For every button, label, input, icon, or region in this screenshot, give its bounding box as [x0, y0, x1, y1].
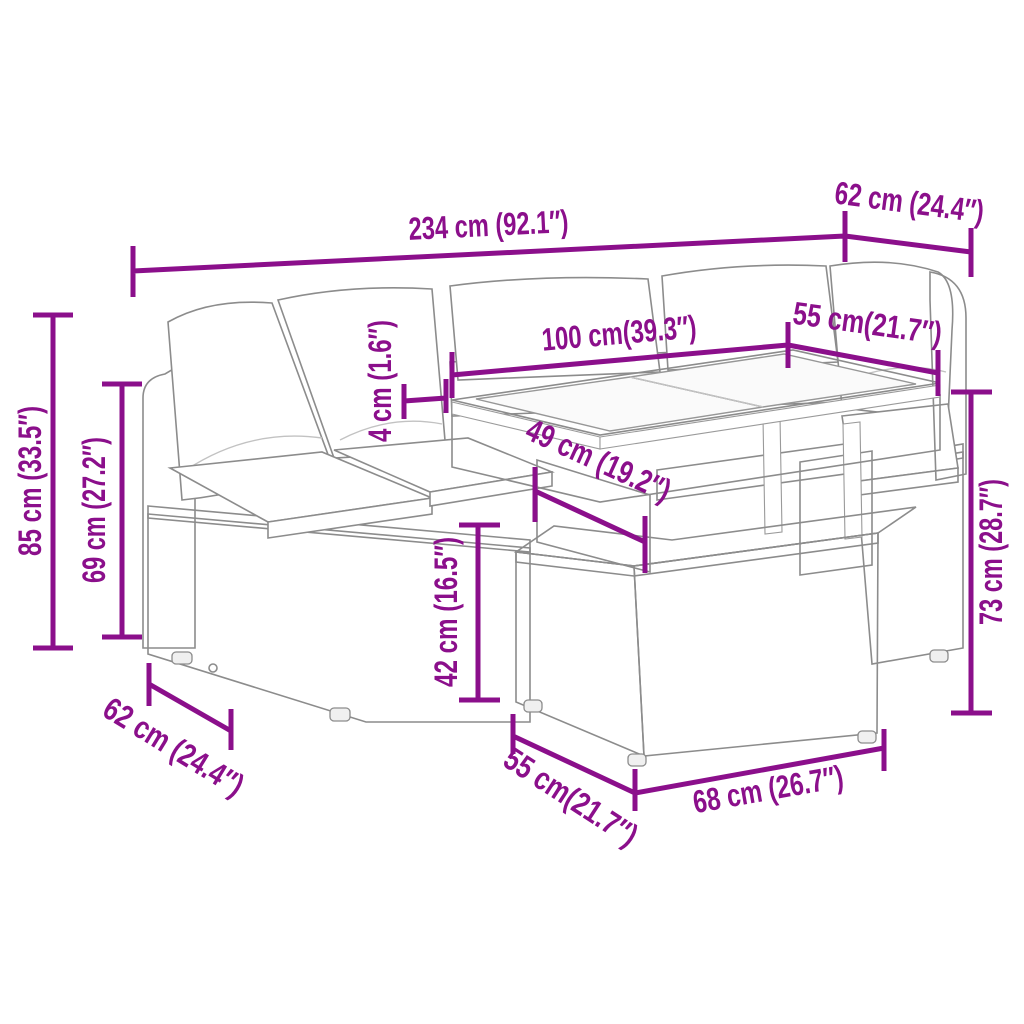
- footstool-left-face: [516, 552, 644, 756]
- table-undershelf: [657, 443, 852, 500]
- dimension-table-height-label: 73 cm (28.7″): [973, 479, 1009, 625]
- dimension-overall-width-label: 234 cm (92.1″): [408, 203, 570, 247]
- dimension-footstool-depth-label: 55 cm(21.7″): [497, 740, 644, 853]
- footstool-foot: [524, 700, 542, 712]
- dimension-table-height: 73 cm (28.7″): [951, 392, 1009, 713]
- dimension-diagram: 234 cm (92.1″) 62 cm (24.4″) 100 cm(39.3…: [0, 0, 1024, 1024]
- footstool-top-rim: [516, 533, 878, 576]
- sofa-foot: [172, 652, 192, 664]
- dimension-glass-top-thickness-label: 4 cm (1.6″): [362, 320, 398, 442]
- dimension-backrest-height: 69 cm (27.2″): [76, 384, 142, 637]
- table-center-post: [843, 422, 862, 539]
- dimension-left-seat-depth-label: 62 cm (24.4″): [97, 690, 251, 803]
- base-detail-hole: [209, 664, 217, 672]
- footstool-foot: [628, 754, 646, 766]
- dimension-seat-height: 42 cm (16.5″): [428, 525, 500, 700]
- dimension-overall-height: 85 cm (33.5″): [12, 315, 73, 648]
- dimension-seat-height-label: 42 cm (16.5″): [428, 537, 464, 687]
- dimension-overall-height-label: 85 cm (33.5″): [12, 406, 48, 556]
- footstool-right-face: [634, 533, 878, 756]
- sofa-foot: [330, 708, 350, 721]
- dimension-footstool-width: 68 cm (26.7″): [635, 729, 884, 820]
- sofa-left-base: [148, 514, 530, 722]
- dimension-footstool-depth: 55 cm(21.7″): [497, 714, 644, 853]
- dimension-corner-depth-top-right: 62 cm (24.4″): [833, 174, 986, 277]
- sofa-foot: [930, 650, 948, 662]
- footstool: [516, 507, 916, 766]
- footstool-foot: [858, 731, 876, 743]
- dimension-left-seat-depth: 62 cm (24.4″): [97, 663, 251, 803]
- dimension-backrest-height-label: 69 cm (27.2″): [76, 437, 112, 583]
- diagram-canvas: 234 cm (92.1″) 62 cm (24.4″) 100 cm(39.3…: [0, 0, 1024, 1024]
- dimension-corner-depth-top-right-label: 62 cm (24.4″): [833, 174, 986, 229]
